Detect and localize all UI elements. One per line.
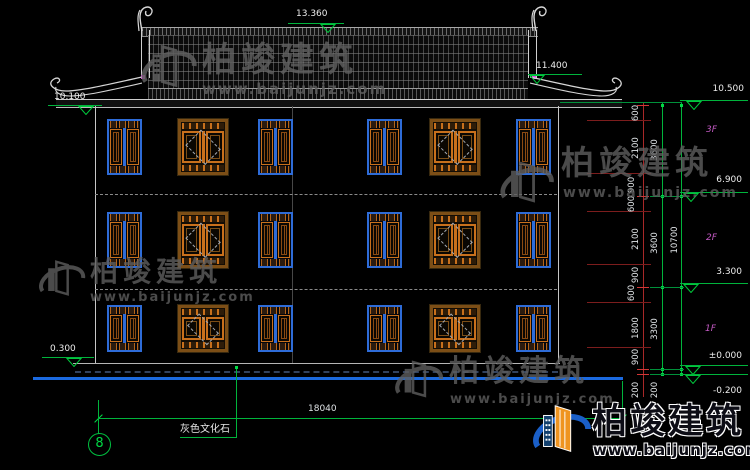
lattice-window-large — [430, 212, 480, 268]
brand-logo-icon — [138, 35, 200, 97]
material-note: 灰色文化石 — [180, 425, 230, 435]
floor-line-3f — [95, 194, 557, 195]
dim-total-height: 10700 — [671, 226, 680, 253]
elevation-drawing-canvas: 600 2100 900 600 2100 900 600 1800 900 2… — [0, 0, 750, 470]
brand-name: 柏竣建筑 — [449, 357, 589, 387]
brand-site: www.baijunjz.com — [563, 186, 738, 200]
elevation-value: 3.300 — [716, 268, 742, 277]
lattice-window-small — [258, 119, 293, 175]
brand-name: 柏竣建筑 — [592, 405, 744, 440]
dim-floor: 3300 — [651, 318, 660, 340]
elevation-value: -0.200 — [713, 387, 742, 396]
brand-name: 柏竣建筑 — [90, 258, 222, 286]
watermark: 柏竣建筑 www.baijunjz.com — [36, 252, 256, 308]
elevation-value: 13.360 — [296, 10, 328, 19]
brand-name: 柏竣建筑 — [202, 43, 358, 77]
lattice-window-small — [258, 305, 293, 352]
floor-tag-1f: 1F — [705, 325, 716, 334]
window-row-1f — [95, 305, 557, 352]
axis-bubble-8: 8 — [88, 433, 111, 456]
lattice-window-small — [516, 212, 551, 268]
brand-logo-color-icon — [530, 396, 592, 464]
dim-total-width: 18040 — [308, 405, 337, 414]
floor-tag-3f: 3F — [706, 126, 717, 135]
brand-logo-icon — [392, 352, 446, 406]
lattice-window-large — [178, 119, 228, 175]
elevation-value: ±0.000 — [709, 352, 742, 361]
dim-segment: 2100 — [632, 228, 641, 250]
lattice-window-large — [178, 305, 228, 352]
lattice-window-small — [367, 305, 402, 352]
elevation-value: 10.500 — [713, 85, 745, 94]
lattice-window-large — [430, 305, 480, 352]
elevation-value: 0.300 — [50, 345, 76, 354]
lattice-window-small — [516, 305, 551, 352]
lattice-window-small — [258, 212, 293, 268]
lattice-window-small — [367, 212, 402, 268]
window-row-3f — [95, 119, 557, 175]
right-ridge-finial-icon — [522, 4, 552, 32]
dim-segment: 600 — [632, 105, 641, 121]
dim-segment: 900 — [632, 267, 641, 283]
brand-logo-icon — [497, 152, 557, 212]
elevation-value: 11.400 — [536, 62, 568, 71]
left-ridge-finial-icon — [128, 4, 158, 32]
watermark-color: 柏竣建筑 www.baijunjz.com — [530, 396, 750, 468]
dim-segment: 900 — [632, 349, 641, 365]
dim-segment: 600 — [628, 285, 637, 301]
floor-tag-2f: 2F — [706, 234, 717, 243]
elevation-value: 10.100 — [54, 93, 86, 102]
brand-name: 柏竣建筑 — [561, 146, 713, 179]
lattice-window-large — [430, 119, 480, 175]
brand-logo-icon — [36, 252, 88, 304]
brand-site: www.baijunjz.com — [90, 291, 255, 304]
lattice-window-small — [367, 119, 402, 175]
watermark: 柏竣建筑 www.baijunjz.com — [138, 35, 378, 99]
lattice-window-small — [107, 305, 142, 352]
brand-site: www.baijunjz.com — [593, 443, 750, 458]
watermark: 柏竣建筑 www.baijunjz.com — [497, 144, 747, 214]
lattice-window-small — [107, 119, 142, 175]
dim-segment: 1800 — [632, 317, 641, 339]
brand-site: www.baijunjz.com — [202, 82, 387, 97]
axis-number: 8 — [95, 436, 103, 451]
dim-floor: 3600 — [651, 232, 660, 254]
